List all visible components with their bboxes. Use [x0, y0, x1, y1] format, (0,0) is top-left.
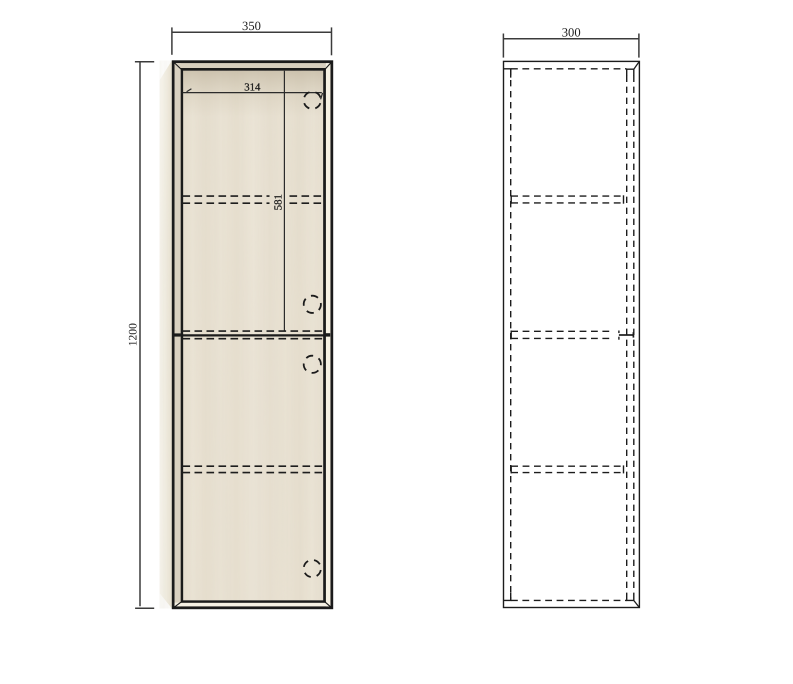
svg-text:1200: 1200: [127, 323, 140, 346]
svg-text:300: 300: [562, 26, 581, 40]
svg-text:350: 350: [242, 19, 261, 33]
svg-text:581: 581: [273, 194, 285, 210]
svg-text:314: 314: [244, 82, 261, 94]
